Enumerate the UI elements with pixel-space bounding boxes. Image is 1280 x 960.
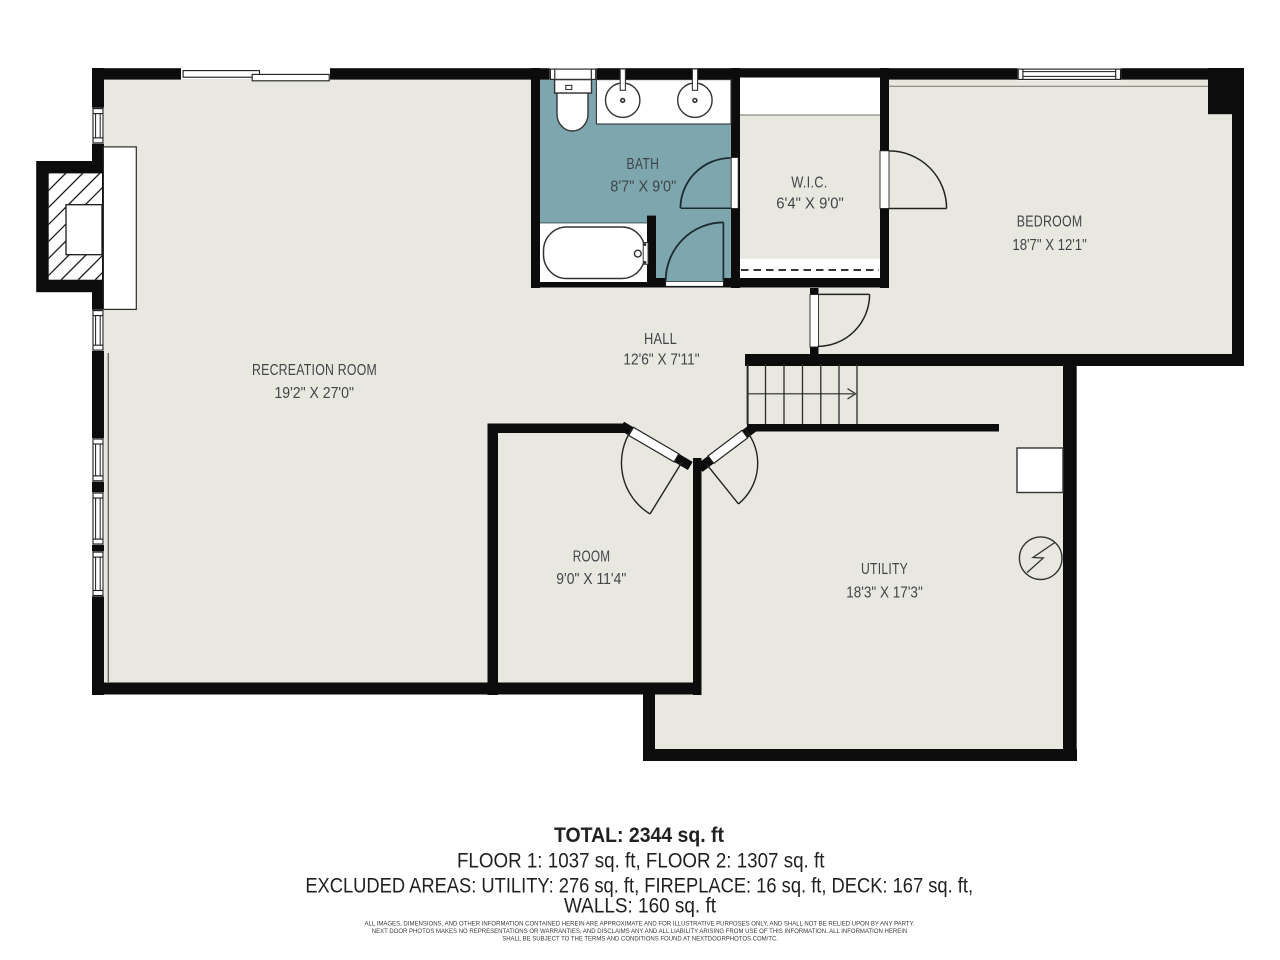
svg-text:RECREATION ROOM: RECREATION ROOM xyxy=(252,362,377,379)
svg-text:WALLS: 160 sq. ft: WALLS: 160 sq. ft xyxy=(564,894,716,917)
svg-text:W.I.C.: W.I.C. xyxy=(791,175,827,192)
svg-text:HALL: HALL xyxy=(644,331,677,348)
svg-text:8'7" X 9'0": 8'7" X 9'0" xyxy=(610,179,676,196)
svg-text:19'2" X 27'0": 19'2" X 27'0" xyxy=(274,385,354,402)
svg-text:9'0" X 11'4": 9'0" X 11'4" xyxy=(556,571,626,588)
svg-text:SHALL BE SUBJECT TO THE TERMS: SHALL BE SUBJECT TO THE TERMS AND CONDIT… xyxy=(502,935,778,942)
svg-text:FLOOR 1: 1037 sq. ft, FLOOR 2:: FLOOR 1: 1037 sq. ft, FLOOR 2: 1307 sq. … xyxy=(457,849,825,872)
svg-text:BEDROOM: BEDROOM xyxy=(1017,214,1083,231)
svg-text:TOTAL: 2344 sq. ft: TOTAL: 2344 sq. ft xyxy=(554,824,724,847)
svg-text:12'6" X 7'11": 12'6" X 7'11" xyxy=(623,352,699,369)
svg-text:6'4" X 9'0": 6'4" X 9'0" xyxy=(776,195,844,212)
svg-text:18'3" X 17'3": 18'3" X 17'3" xyxy=(846,585,923,602)
svg-text:NEXT DOOR PHOTOS MAKES NO REPR: NEXT DOOR PHOTOS MAKES NO REPRESENTATION… xyxy=(372,928,908,935)
svg-text:18'7" X 12'1": 18'7" X 12'1" xyxy=(1012,237,1086,254)
svg-text:ALL IMAGES, DIMENSIONS, AND OT: ALL IMAGES, DIMENSIONS, AND OTHER INFORM… xyxy=(365,921,915,928)
svg-text:ROOM: ROOM xyxy=(573,548,611,565)
svg-text:UTILITY: UTILITY xyxy=(861,561,908,578)
svg-text:BATH: BATH xyxy=(626,156,659,173)
